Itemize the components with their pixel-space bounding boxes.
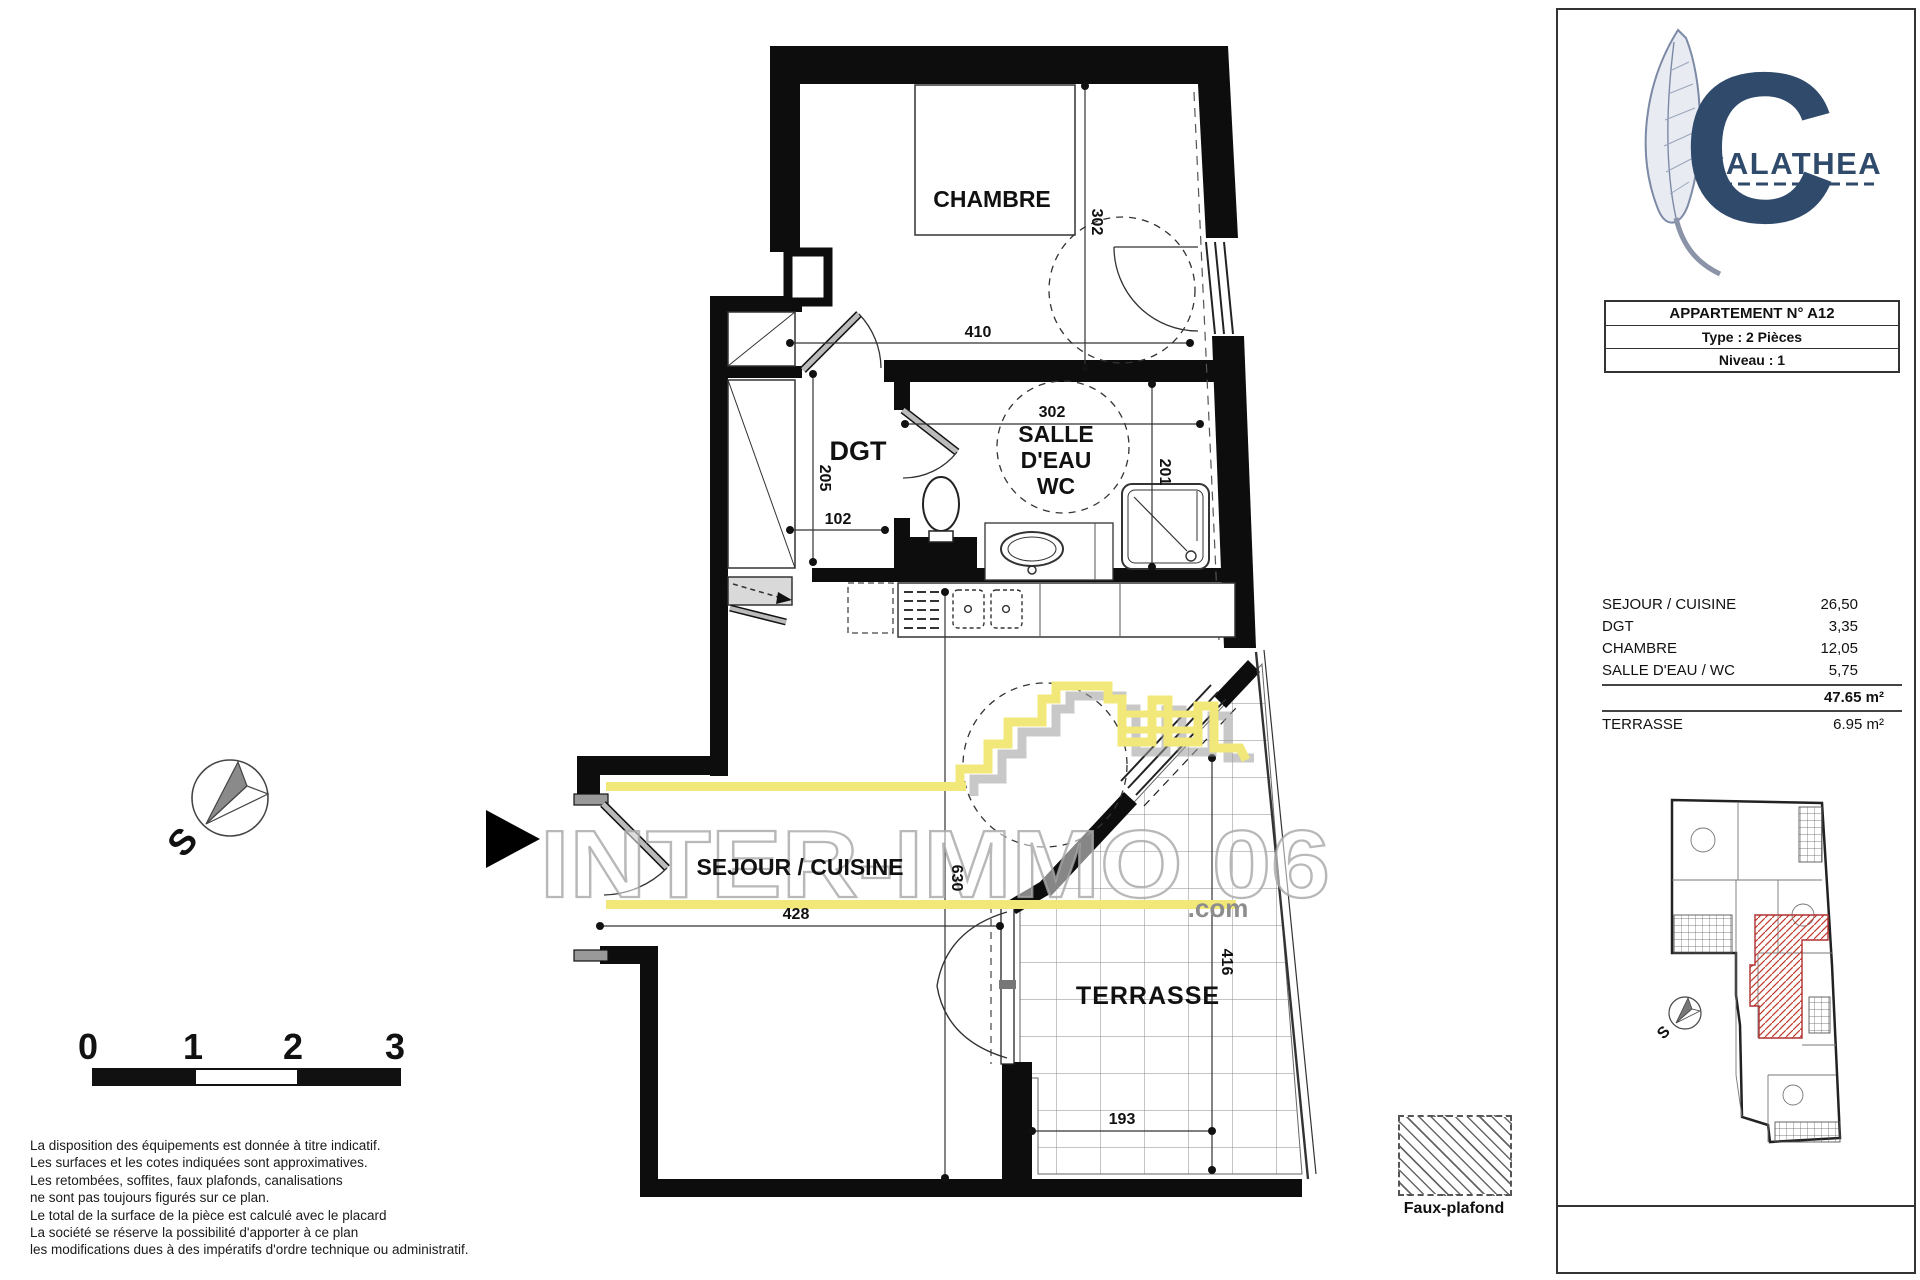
panel-divider: [1558, 1205, 1914, 1207]
compass-south-label: S: [159, 819, 206, 864]
room-label-sejour: SEJOUR / CUISINE: [696, 854, 903, 880]
scale-tick: 2: [283, 1026, 303, 1068]
dim-sejour-w: 428: [783, 906, 810, 923]
apartment-info-box: APPARTEMENT N° A12 Type : 2 Pièces Nivea…: [1604, 300, 1900, 373]
scale-tick: 0: [78, 1026, 98, 1068]
key-plan-compass: S: [1654, 997, 1701, 1043]
dim-dgt-h: 205: [816, 465, 833, 492]
area-row: SALLE D'EAU / WC 5,75: [1602, 660, 1902, 682]
brand-wordmark: CALATHEA: [1702, 146, 1882, 181]
disclaimer-line: ne sont pas toujours figurés sur ce plan…: [30, 1189, 469, 1206]
shower: [1122, 484, 1209, 569]
dim-terrasse-w: 193: [1109, 1111, 1136, 1128]
kitchen: [848, 583, 1235, 637]
room-label-salle-3: WC: [1037, 473, 1075, 499]
areas-table: SEJOUR / CUISINE 26,50 DGT 3,35 CHAMBRE …: [1602, 594, 1902, 736]
bed: [915, 85, 1075, 235]
closets: [728, 312, 795, 568]
floor-plan-sheet: INTER-IMMO 06 .com CHAMBRE DGT SALLE D'E…: [0, 0, 1920, 1280]
scale-tick: 3: [385, 1026, 405, 1068]
apartment-number: APPARTEMENT N° A12: [1606, 302, 1898, 326]
total-area-row: 47.65 m²: [1602, 686, 1902, 712]
dim-chambre-h: 302: [1088, 209, 1105, 236]
terrace-french-door: [937, 906, 1016, 1064]
bathroom-door: [903, 410, 957, 478]
title-block-panel: C CALATHEA APPARTEMENT N° A12 Type : 2 P…: [1556, 8, 1916, 1274]
washbasin: [985, 523, 1113, 580]
cabinet: [728, 577, 792, 622]
key-plan: S: [1618, 785, 1918, 1165]
room-label-terrasse: TERRASSE: [1076, 982, 1220, 1010]
dim-terrasse-h: 416: [1218, 949, 1235, 976]
disclaimer-line: Les retombées, soffites, faux plafonds, …: [30, 1172, 469, 1189]
chambre-window-swing: [1114, 247, 1198, 331]
apartment-type: Type : 2 Pièces: [1606, 326, 1898, 349]
entry-pointer-icon: [486, 810, 540, 868]
scale-tick: 1: [183, 1026, 203, 1068]
dim-dgt-w: 102: [825, 511, 852, 528]
disclaimer-line: les modifications dues à des impératifs …: [30, 1241, 469, 1258]
dim-bath-w: 302: [1039, 404, 1066, 421]
compass: S: [159, 760, 268, 864]
scale-bar: [92, 1068, 401, 1086]
dim-bath-h: 201: [1156, 459, 1173, 486]
faux-plafond-swatch: [1398, 1115, 1512, 1196]
duct-shaft: [788, 252, 828, 302]
area-row: CHAMBRE 12,05: [1602, 638, 1902, 660]
disclaimer-line: La société se réserve la possibilité d'a…: [30, 1224, 469, 1241]
disclaimer-line: Le total de la surface de la pièce est c…: [30, 1207, 469, 1224]
disclaimer-line: Les surfaces et les cotes indiquées sont…: [30, 1154, 469, 1171]
area-row: SEJOUR / CUISINE 26,50: [1602, 594, 1902, 616]
disclaimer-line: La disposition des équipements est donné…: [30, 1137, 469, 1154]
room-label-salle-1: SALLE: [1018, 421, 1093, 447]
dim-sejour-h: 630: [948, 865, 965, 892]
chambre-window: [1206, 242, 1233, 334]
watermark-domain: .com: [1188, 893, 1249, 923]
room-label-chambre: CHAMBRE: [933, 186, 1051, 212]
room-label-dgt: DGT: [830, 436, 888, 466]
dim-chambre-w: 410: [965, 324, 992, 341]
area-row: DGT 3,35: [1602, 616, 1902, 638]
apartment-level: Niveau : 1: [1606, 349, 1898, 371]
chambre-door: [803, 314, 881, 370]
terrace-tiles: [1020, 664, 1302, 1174]
faux-plafond-label: Faux-plafond: [1372, 1200, 1536, 1218]
disclaimer: La disposition des équipements est donné…: [30, 1137, 469, 1259]
calathea-logo: C CALATHEA: [1586, 22, 1886, 284]
scale-numbers: 0 1 2 3: [0, 1026, 430, 1062]
terrace-area-row: TERRASSE 6.95 m²: [1602, 712, 1902, 736]
toilet: [923, 477, 959, 542]
room-label-salle-2: D'EAU: [1021, 447, 1092, 473]
key-plan-south-label: S: [1654, 1023, 1674, 1043]
